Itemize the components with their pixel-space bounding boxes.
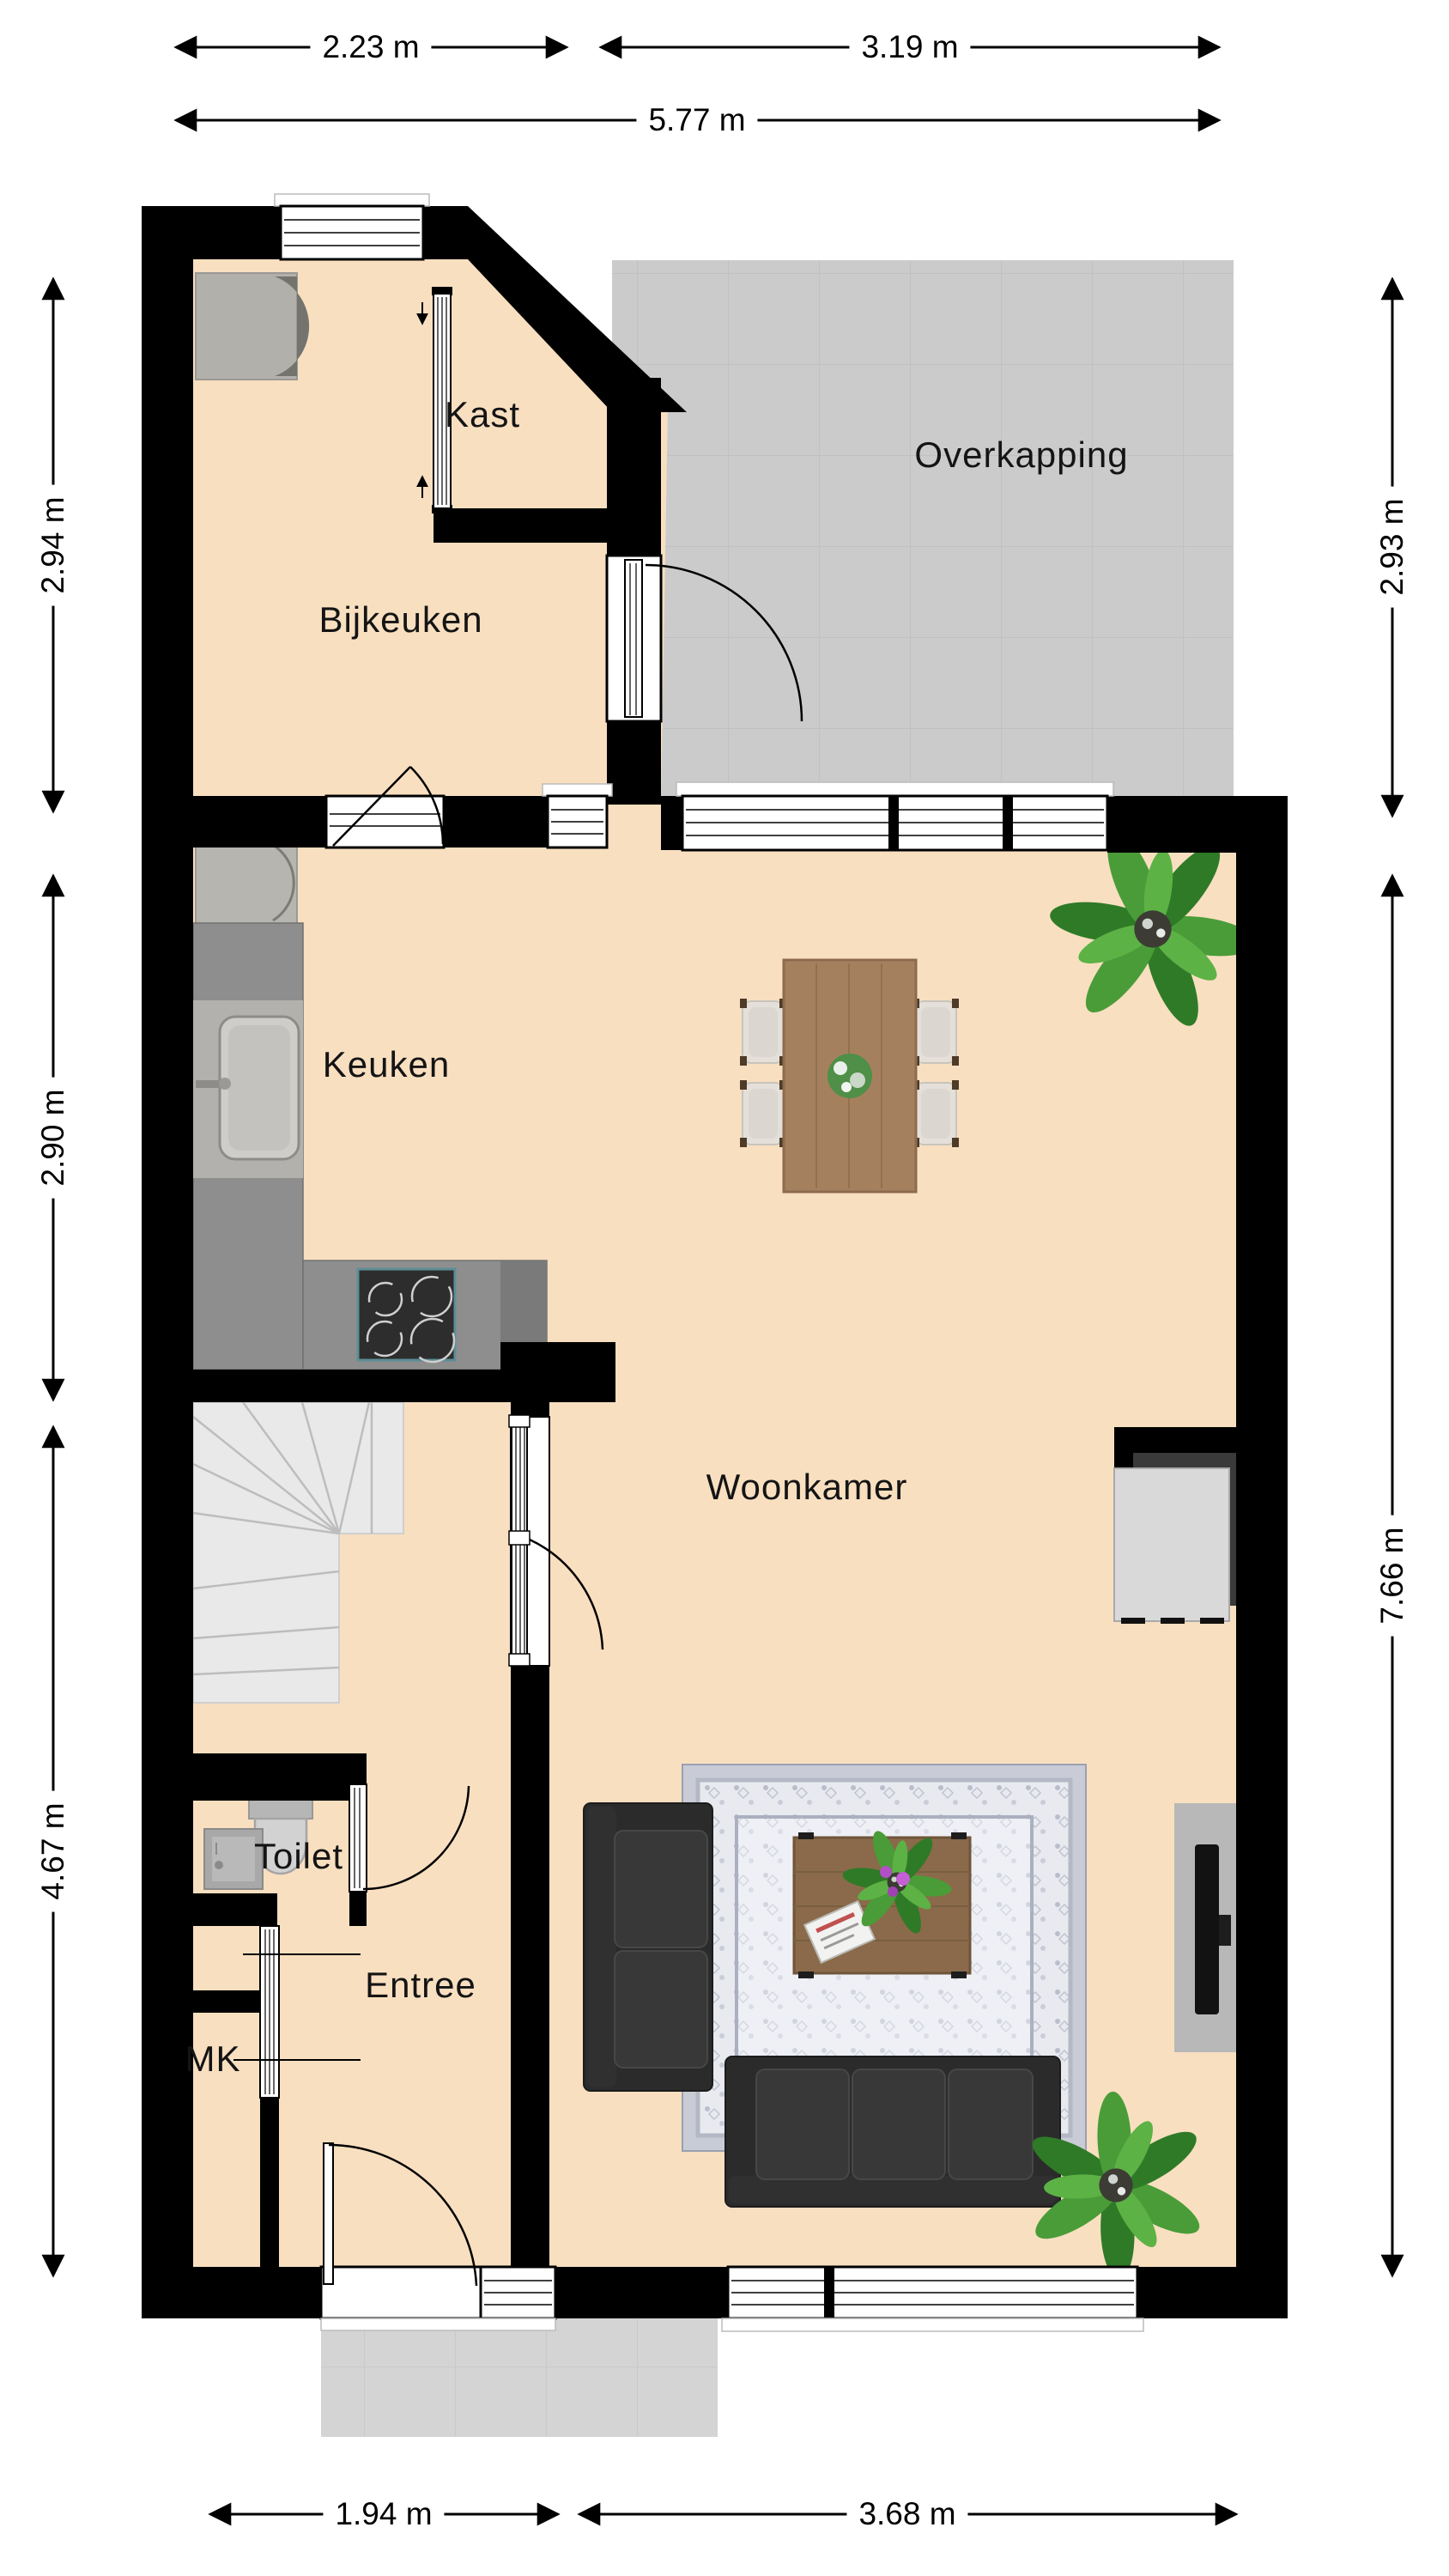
dim-label-left-upper: 2.94 m	[34, 484, 72, 605]
room-label-mk: MK	[185, 2038, 241, 2080]
room-label-keuken: Keuken	[323, 1044, 450, 1085]
table-centerpiece	[828, 1054, 872, 1098]
dim-label-top-left: 2.23 m	[310, 28, 431, 66]
window-keuken-small	[543, 784, 612, 848]
sofa-three-seat	[725, 2057, 1060, 2207]
dim-label-bottom-left: 1.94 m	[323, 2495, 444, 2533]
entrance-stoop	[321, 2318, 718, 2437]
dim-label-right-lower: 7.66 m	[1373, 1515, 1411, 1636]
dim-label-right-upper: 2.93 m	[1373, 486, 1411, 607]
window-woonkamer-south	[722, 2267, 1143, 2331]
dim-label-top-right: 3.19 m	[849, 28, 970, 66]
dim-label-bottom-right: 3.68 m	[846, 2495, 967, 2533]
dim-label-left-middle: 2.90 m	[34, 1077, 72, 1198]
stove	[358, 1269, 455, 1362]
sofa-two-seat	[584, 1803, 712, 2091]
room-label-overkapping: Overkapping	[914, 434, 1128, 476]
room-label-toilet: Toilet	[254, 1836, 343, 1877]
overkapping-area	[612, 260, 1234, 799]
window-bijkeuken-top	[275, 194, 429, 259]
kitchen-fridge	[196, 841, 297, 924]
room-label-kast: Kast	[445, 394, 520, 435]
room-label-entree: Entree	[365, 1965, 476, 2006]
window-entree-sidelight	[481, 2267, 555, 2318]
room-label-bijkeuken: Bijkeuken	[318, 599, 482, 641]
floorplan-page: Kast Overkapping Bijkeuken Keuken Woonka…	[0, 0, 1449, 2576]
dim-label-top-total: 5.77 m	[636, 101, 757, 139]
window-woonkamer-north	[676, 782, 1113, 850]
floorplan-canvas	[0, 0, 1449, 2576]
tv	[1174, 1803, 1236, 2052]
dim-label-left-lower: 4.67 m	[34, 1790, 72, 1911]
room-label-woonkamer: Woonkamer	[706, 1467, 908, 1508]
wall-niche-cabinet	[1114, 1427, 1236, 1624]
washing-machine	[196, 273, 309, 380]
